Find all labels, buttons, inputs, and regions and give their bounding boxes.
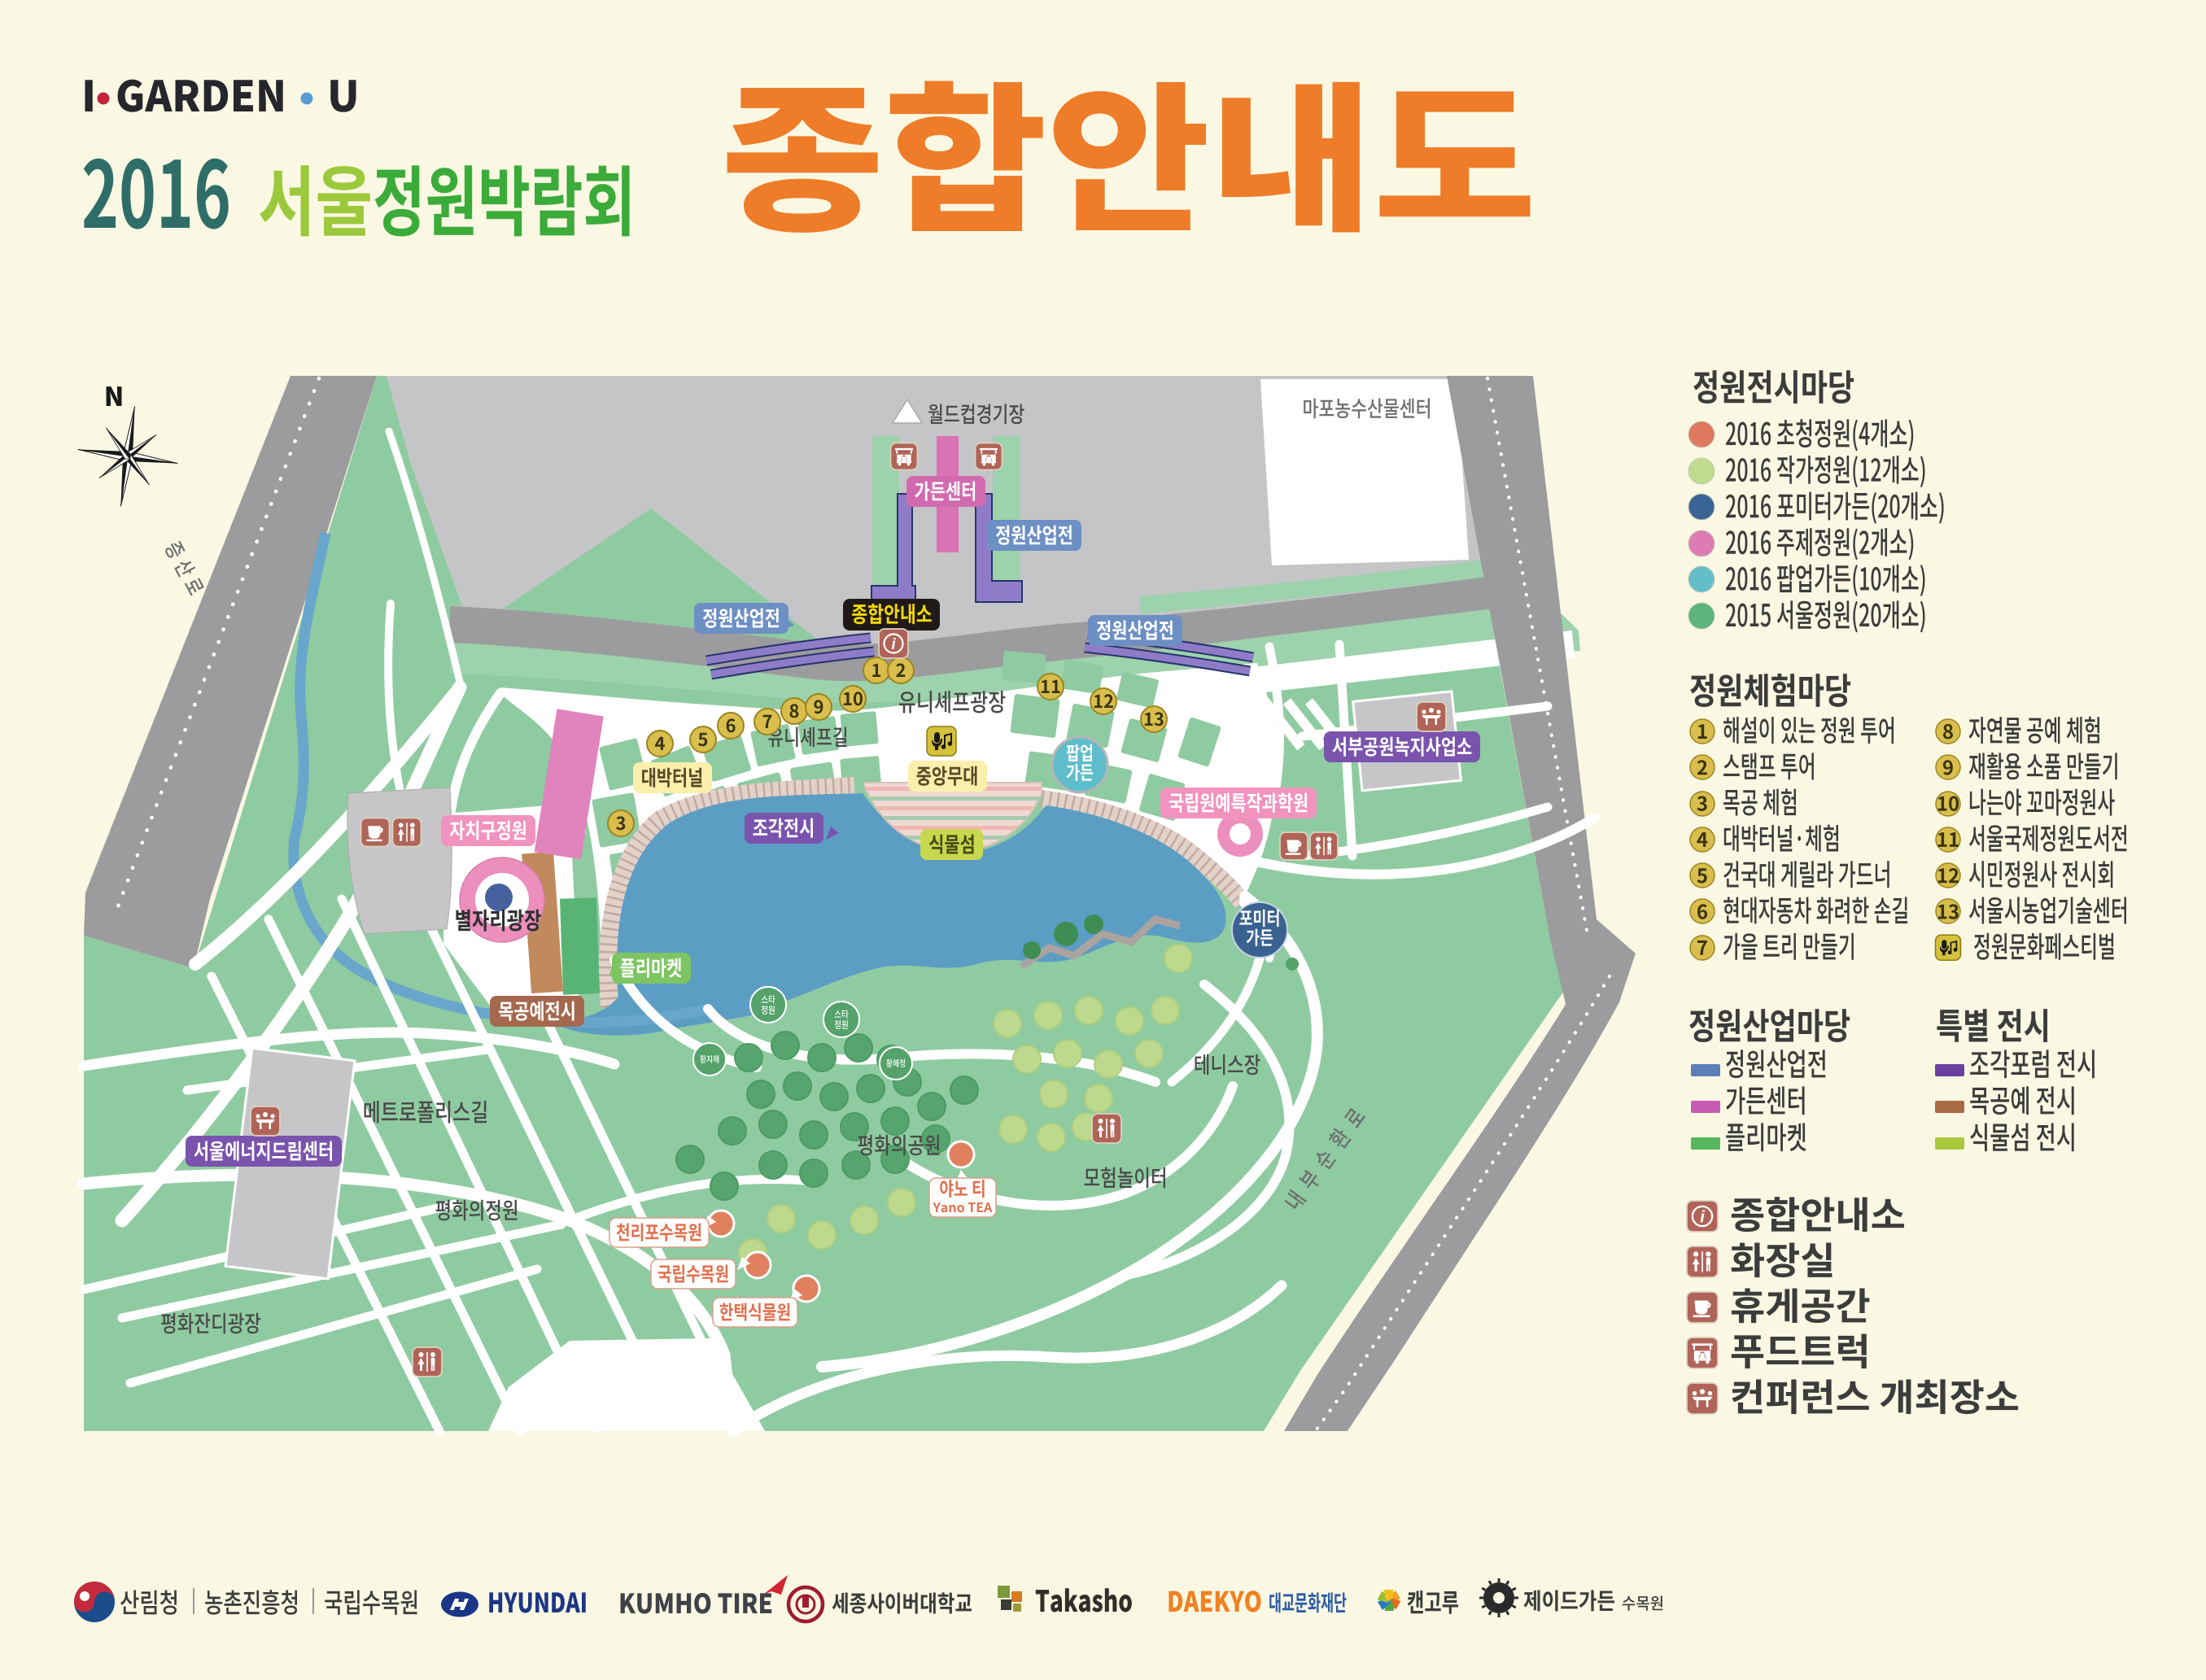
svg-text:i: i (891, 636, 896, 653)
svg-text:i: i (1700, 1208, 1705, 1226)
